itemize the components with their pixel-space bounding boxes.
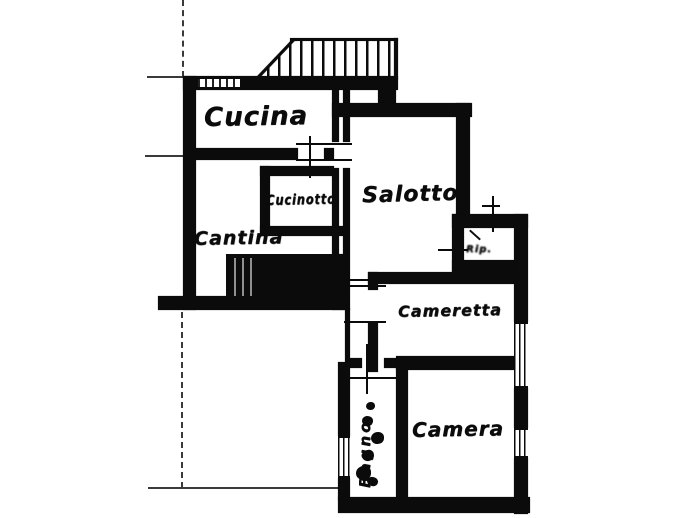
property-line-horizontal-bottom	[148, 487, 341, 489]
wall-bath-right	[396, 368, 408, 498]
room-label-ripostiglio: Rip.	[466, 245, 492, 255]
tick-topright-horizontal	[482, 205, 500, 207]
window-right-upper	[514, 322, 528, 388]
wall-bottom	[338, 497, 530, 513]
wall-smallbedroom-left-upper	[368, 272, 378, 290]
balcony-edge-right	[394, 38, 398, 80]
tick-smallbedroom-door-upper	[348, 285, 386, 287]
tick-kitchen-door-upper	[296, 143, 352, 145]
room-label-cameretta: Cameretta	[398, 302, 502, 320]
property-line-vertical-bottom	[181, 312, 183, 488]
wall-exterior-right-mid	[514, 388, 528, 428]
room-label-cantina: Cantina	[194, 228, 284, 249]
wall-closet-bottom	[452, 260, 514, 272]
tick-bath-door-horizontal	[348, 377, 396, 379]
property-line-horizontal-upper	[147, 76, 184, 78]
tick-smallbedroom-door-lower	[344, 321, 386, 323]
tick-kitchen-door-lower	[296, 159, 352, 161]
room-label-camera: Camera	[412, 418, 504, 440]
window-right-lower	[514, 428, 528, 458]
room-label-cucina: Cucina	[204, 103, 308, 131]
wall-bedroom-divider	[396, 356, 514, 370]
stair-block	[226, 254, 345, 300]
wall-kitchen-left	[183, 76, 196, 310]
wall-livingroom-left-inner-lower	[343, 168, 350, 254]
window-kitchen-top	[198, 77, 240, 89]
wall-hall-left	[345, 308, 350, 362]
room-label-bagno: Bagno	[358, 420, 373, 488]
window-bath-left	[338, 436, 350, 478]
room-label-cucinotto: Cucinotto	[266, 193, 336, 208]
wall-smallbedroom-top	[368, 272, 514, 284]
tick-closet-swing	[469, 230, 481, 241]
property-line-vertical-top	[182, 0, 184, 77]
balcony-edge-top	[290, 38, 398, 41]
tick-closet-door	[438, 249, 468, 251]
wall-bath-left-upper	[338, 362, 350, 436]
wall-smallbedroom-left-lower	[368, 322, 378, 372]
tick-bath-door-vertical	[366, 344, 368, 394]
wall-exterior-right-upper	[514, 214, 528, 322]
property-line-horizontal-mid	[145, 155, 184, 157]
wall-livingroom-left-outer-lower	[332, 168, 339, 254]
tick-topright-vertical	[492, 196, 494, 232]
room-label-salotto: Salotto	[362, 183, 459, 208]
wall-bath-doorjamb-right	[384, 358, 398, 368]
wall-kitchen-bottom-left	[196, 148, 298, 160]
wall-kitchenette-top	[260, 166, 334, 176]
wall-livingroom-top	[332, 103, 472, 117]
tick-stairs-right	[345, 279, 373, 281]
bathroom-fixture	[366, 402, 375, 410]
floor-plan: Cucina Cucinotto Cantina Salotto Rip. Ca…	[0, 0, 692, 518]
